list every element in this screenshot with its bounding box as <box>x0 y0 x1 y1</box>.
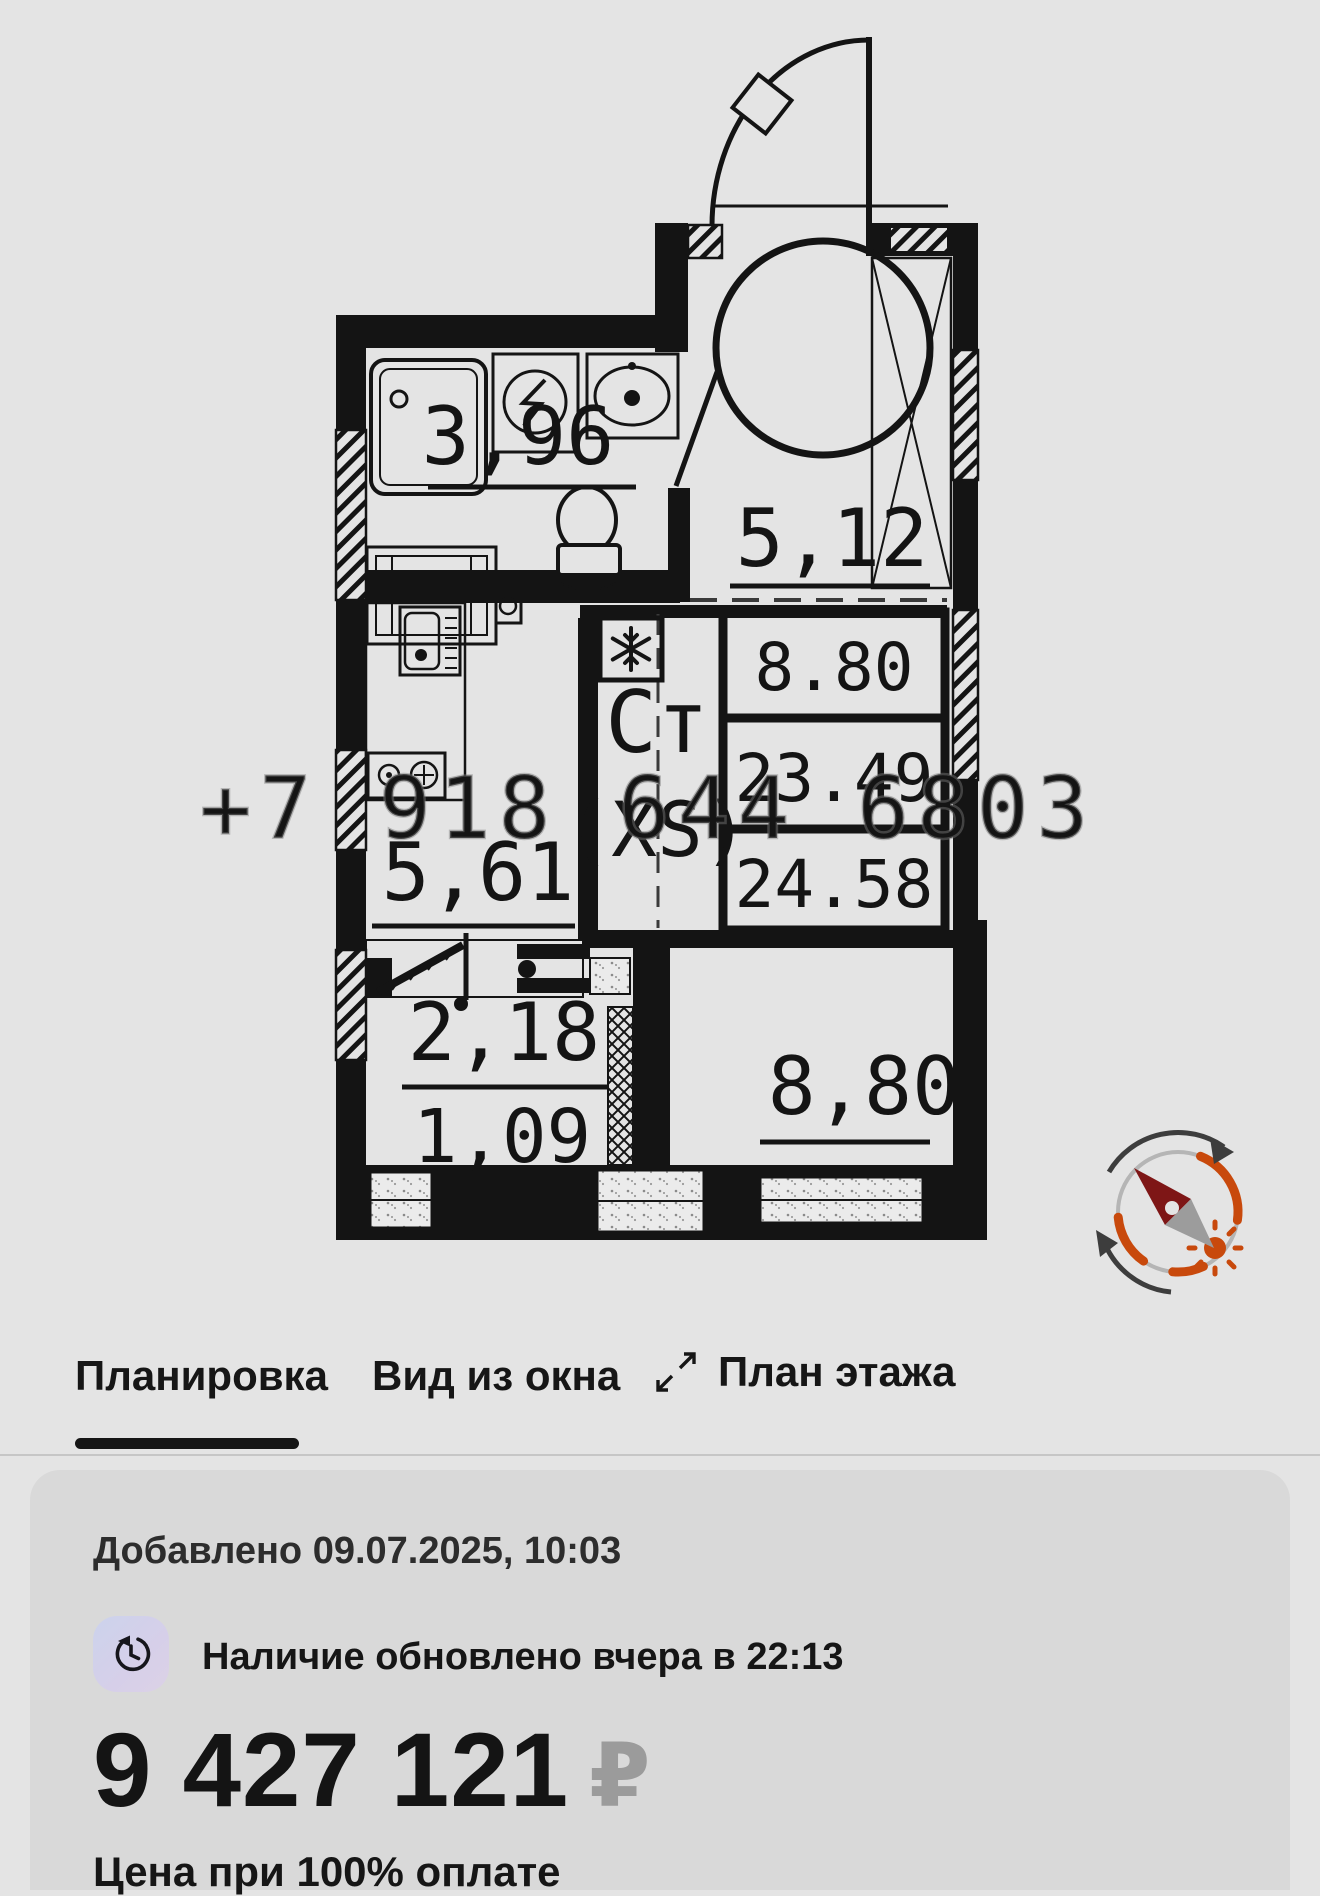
room-label-bedroom: 8,80 <box>768 1040 961 1133</box>
toilet <box>558 487 620 590</box>
price-note: Цена при 100% оплате <box>93 1848 561 1896</box>
room-label-bathroom: 3,96 <box>422 390 615 483</box>
tab-window-view[interactable]: Вид из окна <box>372 1352 620 1400</box>
compass-needle <box>1134 1168 1214 1248</box>
clock-refresh-icon <box>108 1631 154 1677</box>
tabs-divider <box>0 1454 1320 1456</box>
entrance-door <box>712 37 948 252</box>
price-row: 9 427 121 ₽ <box>93 1716 650 1827</box>
availability-badge <box>93 1616 169 1692</box>
kitchen-sink <box>400 607 460 675</box>
snowflake-icon <box>613 628 649 670</box>
currency-symbol: ₽ <box>589 1724 650 1827</box>
listing-info-card: Добавлено 09.07.2025, 10:03 Наличие обно… <box>30 1470 1290 1890</box>
unit-type-label: Ст <box>605 673 709 773</box>
availability-text: Наличие обновлено вчера в 22:13 <box>202 1636 844 1679</box>
tab-layout[interactable]: Планировка <box>75 1352 328 1400</box>
listing-page: 8.80 23.49 24.58 Ст (XS) <box>0 0 1320 1890</box>
compass-icon[interactable] <box>1096 1132 1241 1292</box>
active-tab-underline <box>75 1438 299 1449</box>
expand-icon <box>652 1348 700 1396</box>
turning-circle <box>716 241 930 455</box>
added-date: Добавлено 09.07.2025, 10:03 <box>93 1530 621 1573</box>
tab-floor-plan[interactable]: План этажа <box>652 1348 955 1396</box>
room-label-hallway: 5,12 <box>736 492 929 585</box>
floor-plan-image[interactable]: 8.80 23.49 24.58 Ст (XS) <box>0 0 1320 1330</box>
vent-shaft <box>608 1007 633 1165</box>
room-label-corridor: 2,18 <box>408 986 601 1079</box>
tab-floor-plan-label: План этажа <box>718 1348 955 1396</box>
bathroom-door <box>676 372 717 486</box>
price-value: 9 427 121 <box>93 1716 569 1825</box>
watermark-text: +7 918 644 6803 <box>200 759 1097 859</box>
fridge-icon <box>600 618 662 680</box>
room-label-closet: 1,09 <box>413 1094 591 1180</box>
area-row-1: 8.80 <box>755 629 914 706</box>
